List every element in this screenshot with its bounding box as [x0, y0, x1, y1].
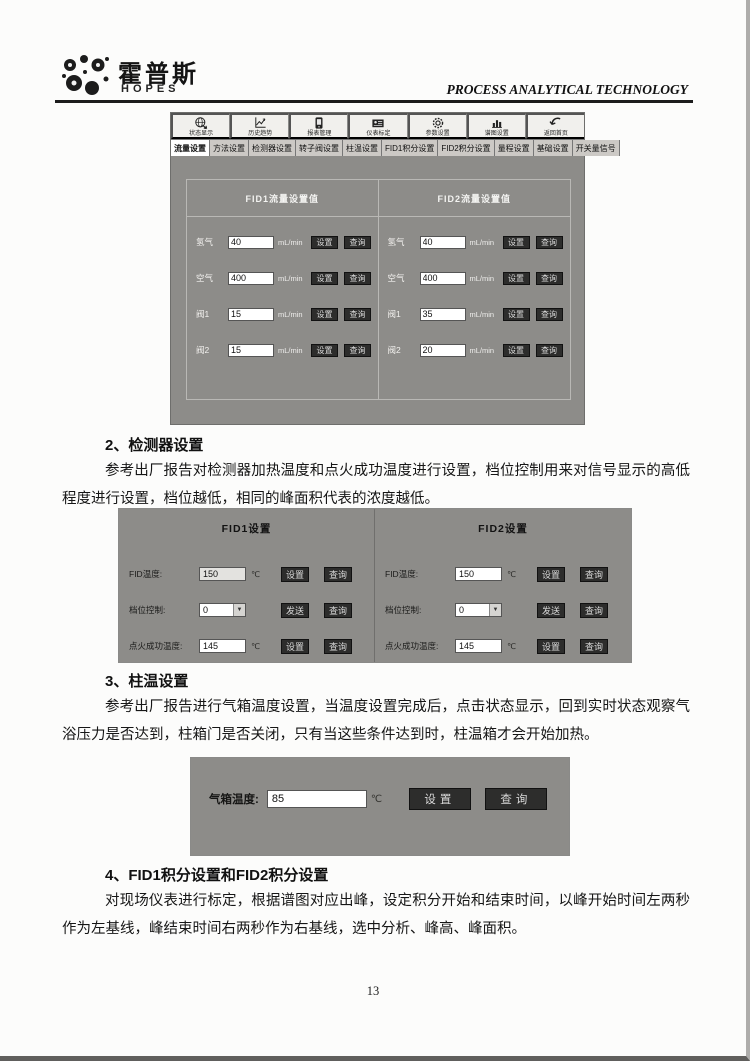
- tab-flow-settings[interactable]: 流量设置: [171, 140, 210, 156]
- flow-label: 阀1: [388, 308, 420, 320]
- oven-temp-label: 气箱温度:: [209, 791, 259, 807]
- fid-temp-row: FID温度: ℃ 设置 查询: [119, 556, 374, 592]
- flow-label: 阀2: [196, 344, 228, 356]
- flow-input[interactable]: [228, 308, 274, 321]
- celsius-unit: ℃: [507, 642, 523, 651]
- flow-row-valve2: 阀2 mL/min 设置 查询: [379, 332, 571, 368]
- flow-row-valve1: 阀1 mL/min 设置 查询: [187, 296, 378, 332]
- set-button[interactable]: 设置: [537, 639, 565, 654]
- gear-control-row: 档位控制: 0 ▼ 发送 查询: [119, 592, 374, 628]
- oven-temp-screenshot: 气箱温度: ℃ 设置 查询: [190, 757, 570, 856]
- spectrum-settings-button[interactable]: 谱图设置: [467, 113, 526, 139]
- set-button[interactable]: 设置: [311, 272, 338, 285]
- fid2-settings-panel: FID2设置 FID温度: ℃ 设置 查询 档位控制: 0 ▼ 发送: [375, 509, 631, 662]
- header-tagline: PROCESS ANALYTICAL TECHNOLOGY: [446, 82, 688, 98]
- flow-rows: 氢气 mL/min 设置 查询 空气 mL/min 设置 查询 阀1: [187, 217, 378, 368]
- flow-label: 阀2: [388, 344, 420, 356]
- fid-temp-label: FID温度:: [129, 568, 199, 580]
- back-arrow-icon: [549, 116, 563, 130]
- flow-row-valve1: 阀1 mL/min 设置 查询: [379, 296, 571, 332]
- panel-title: FID1流量设置值: [187, 180, 378, 217]
- return-home-button[interactable]: 返回首页: [526, 113, 584, 139]
- section4-heading: 4、FID1积分设置和FID2积分设置: [105, 864, 328, 885]
- flow-input[interactable]: [420, 236, 466, 249]
- query-button[interactable]: 查询: [344, 344, 371, 357]
- query-button[interactable]: 查询: [324, 567, 352, 582]
- query-button[interactable]: 查询: [580, 603, 608, 618]
- parameter-settings-button[interactable]: 参数设置: [408, 113, 467, 139]
- flow-unit: mL/min: [470, 310, 500, 319]
- flow-row-valve2: 阀2 mL/min 设置 查询: [187, 332, 378, 368]
- tab-column-temp-settings[interactable]: 柱温设置: [343, 140, 382, 156]
- flow-unit: mL/min: [278, 274, 308, 283]
- ignition-temp-input[interactable]: [455, 639, 502, 653]
- flow-settings-screenshot: 状态显示 历史趋势 报表管理 参数设置 仪表标定 参数设置 谱图设置: [170, 112, 585, 425]
- set-button[interactable]: 设置: [503, 272, 530, 285]
- oven-temp-row: 气箱温度: ℃ 设置 查询: [191, 788, 569, 810]
- fid1-settings-panel: FID1设置 FID温度: ℃ 设置 查询 档位控制: 0 ▼ 发送: [119, 509, 375, 662]
- set-button[interactable]: 设置: [503, 344, 530, 357]
- send-button[interactable]: 发送: [281, 603, 309, 618]
- set-button[interactable]: 设置: [503, 308, 530, 321]
- flow-label: 氢气: [388, 236, 420, 248]
- trend-chart-icon: [253, 116, 267, 130]
- fid-temp-label: FID温度:: [385, 568, 455, 580]
- panel-title: FID1设置: [119, 521, 374, 536]
- set-button[interactable]: 设置: [537, 567, 565, 582]
- flow-input[interactable]: [420, 308, 466, 321]
- selected-value: 0: [200, 605, 233, 615]
- report-manage-button[interactable]: 报表管理: [289, 113, 348, 139]
- bar-chart-icon: [490, 116, 504, 130]
- gear-control-select[interactable]: 0 ▼: [199, 603, 246, 617]
- section4-paragraph: 对现场仪表进行标定，根据谱图对应出峰，设定积分开始和结束时间，以峰开始时间左两秒…: [62, 887, 690, 943]
- set-button[interactable]: 设置: [281, 567, 309, 582]
- page-number: 13: [0, 984, 746, 999]
- section2-paragraph: 参考出厂报告对检测器加热温度和点火成功温度进行设置，档位控制用来对信号显示的高低…: [62, 457, 690, 513]
- detector-rows: FID温度: ℃ 设置 查询 档位控制: 0 ▼ 发送 查询: [375, 556, 631, 664]
- flow-input[interactable]: [228, 236, 274, 249]
- section3-heading: 3、柱温设置: [105, 670, 188, 691]
- set-button[interactable]: 设置: [311, 344, 338, 357]
- fid2-flow-panel: FID2流量设置值 氢气 mL/min 设置 查询 空气 mL/min 设置: [379, 180, 571, 399]
- celsius-unit: ℃: [371, 794, 391, 805]
- flow-label: 空气: [388, 272, 420, 284]
- chevron-down-icon: ▼: [233, 604, 245, 616]
- send-button[interactable]: 发送: [537, 603, 565, 618]
- flow-label: 阀1: [196, 308, 228, 320]
- fid-temp-input[interactable]: [199, 567, 246, 581]
- tab-rotor-valve-settings[interactable]: 转子阀设置: [296, 140, 343, 156]
- set-button[interactable]: 设置: [281, 639, 309, 654]
- toolbar-label: 参数设置: [426, 131, 450, 137]
- flow-label: 空气: [196, 272, 228, 284]
- tab-fid2-integral-settings[interactable]: FID2积分设置: [438, 140, 494, 156]
- ignition-temp-row: 点火成功温度: ℃ 设置 查询: [375, 628, 631, 664]
- flow-input[interactable]: [420, 344, 466, 357]
- selected-value: 0: [456, 605, 489, 615]
- set-button[interactable]: 设置: [503, 236, 530, 249]
- gear-control-select[interactable]: 0 ▼: [455, 603, 502, 617]
- query-button[interactable]: 查询: [580, 639, 608, 654]
- query-button[interactable]: 查询: [324, 639, 352, 654]
- toolbar-label: 返回首页: [544, 131, 568, 137]
- query-button[interactable]: 查询: [344, 236, 371, 249]
- instrument-calibration-button[interactable]: 参数设置 仪表标定: [348, 113, 407, 139]
- report-icon: [312, 116, 326, 130]
- toolbar-label: 报表管理: [307, 131, 331, 137]
- fid-temp-input[interactable]: [455, 567, 502, 581]
- flow-input[interactable]: [228, 344, 274, 357]
- query-button[interactable]: 查询: [344, 308, 371, 321]
- fid1-flow-panel: FID1流量设置值 氢气 mL/min 设置 查询 空气 mL/min 设置: [187, 180, 379, 399]
- tab-method-settings[interactable]: 方法设置: [210, 140, 249, 156]
- flow-unit: mL/min: [278, 310, 308, 319]
- brand-name-en: HOPES: [121, 83, 180, 95]
- query-button[interactable]: 查询: [536, 236, 563, 249]
- gear-control-row: 档位控制: 0 ▼ 发送 查询: [375, 592, 631, 628]
- set-button[interactable]: 设置: [311, 236, 338, 249]
- set-button[interactable]: 设置: [311, 308, 338, 321]
- flow-label: 氢气: [196, 236, 228, 248]
- set-button[interactable]: 设置: [409, 788, 471, 810]
- globe-icon: [194, 116, 208, 130]
- flow-unit: mL/min: [470, 346, 500, 355]
- ignition-temp-row: 点火成功温度: ℃ 设置 查询: [119, 628, 374, 664]
- chevron-down-icon: ▼: [489, 604, 501, 616]
- tab-detector-settings[interactable]: 检测器设置: [249, 140, 296, 156]
- section2-heading: 2、检测器设置: [105, 434, 203, 455]
- settings-tab-bar: 流量设置 方法设置 检测器设置 转子阀设置 柱温设置 FID1积分设置 FID2…: [171, 140, 584, 156]
- hopes-logo-icon: [60, 52, 114, 100]
- tab-basic-settings[interactable]: 基础设置: [534, 140, 573, 156]
- flow-row-h2: 氢气 mL/min 设置 查询: [187, 224, 378, 260]
- toolbar-label: 状态显示: [189, 131, 213, 137]
- panel-title: FID2流量设置值: [379, 180, 571, 217]
- flow-settings-panel: FID1流量设置值 氢气 mL/min 设置 查询 空气 mL/min 设置: [186, 179, 571, 400]
- flow-row-air: 空气 mL/min 设置 查询: [187, 260, 378, 296]
- flow-unit: mL/min: [278, 238, 308, 247]
- history-trend-button[interactable]: 历史趋势: [230, 113, 289, 139]
- ignition-temp-label: 点火成功温度:: [129, 640, 199, 652]
- flow-input[interactable]: [228, 272, 274, 285]
- detector-rows: FID温度: ℃ 设置 查询 档位控制: 0 ▼ 发送 查询: [119, 556, 374, 664]
- toolbar-label: 谱图设置: [485, 131, 509, 137]
- query-button[interactable]: 查询: [536, 344, 563, 357]
- section3-paragraph: 参考出厂报告进行气箱温度设置，当温度设置完成后，点击状态显示，回到实时状态观察气…: [62, 693, 690, 749]
- query-button[interactable]: 查询: [536, 308, 563, 321]
- fid-temp-row: FID温度: ℃ 设置 查询: [375, 556, 631, 592]
- calibration-card-icon: [371, 116, 385, 130]
- gear-control-label: 档位控制:: [385, 604, 455, 616]
- celsius-unit: ℃: [251, 570, 267, 579]
- tab-range-settings[interactable]: 量程设置: [495, 140, 534, 156]
- tab-switch-signal[interactable]: 开关量信号: [573, 140, 620, 156]
- flow-unit: mL/min: [278, 346, 308, 355]
- query-button[interactable]: 查询: [485, 788, 547, 810]
- ignition-temp-input[interactable]: [199, 639, 246, 653]
- toolbar: 状态显示 历史趋势 报表管理 参数设置 仪表标定 参数设置 谱图设置: [171, 113, 584, 140]
- celsius-unit: ℃: [507, 570, 523, 579]
- document-page: 霍普斯 HOPES PROCESS ANALYTICAL TECHNOLOGY …: [0, 0, 750, 1061]
- celsius-unit: ℃: [251, 642, 267, 651]
- ignition-temp-label: 点火成功温度:: [385, 640, 455, 652]
- flow-row-air: 空气 mL/min 设置 查询: [379, 260, 571, 296]
- flow-rows: 氢气 mL/min 设置 查询 空气 mL/min 设置 查询 阀1: [379, 217, 571, 368]
- toolbar-label: 历史趋势: [248, 131, 272, 137]
- query-button[interactable]: 查询: [580, 567, 608, 582]
- query-button[interactable]: 查询: [536, 272, 563, 285]
- gear-icon: [431, 116, 445, 130]
- gear-control-label: 档位控制:: [129, 604, 199, 616]
- header-rule: [55, 100, 693, 103]
- query-button[interactable]: 查询: [324, 603, 352, 618]
- flow-unit: mL/min: [470, 274, 500, 283]
- status-display-button[interactable]: 状态显示: [171, 113, 230, 139]
- tab-fid1-integral-settings[interactable]: FID1积分设置: [382, 140, 438, 156]
- flow-unit: mL/min: [470, 238, 500, 247]
- toolbar-label: 仪表标定: [366, 131, 390, 137]
- panel-title: FID2设置: [375, 521, 631, 536]
- query-button[interactable]: 查询: [344, 272, 371, 285]
- oven-temp-input[interactable]: [267, 790, 367, 808]
- flow-input[interactable]: [420, 272, 466, 285]
- detector-settings-screenshot: FID1设置 FID温度: ℃ 设置 查询 档位控制: 0 ▼ 发送: [118, 508, 632, 663]
- flow-row-h2: 氢气 mL/min 设置 查询: [379, 224, 571, 260]
